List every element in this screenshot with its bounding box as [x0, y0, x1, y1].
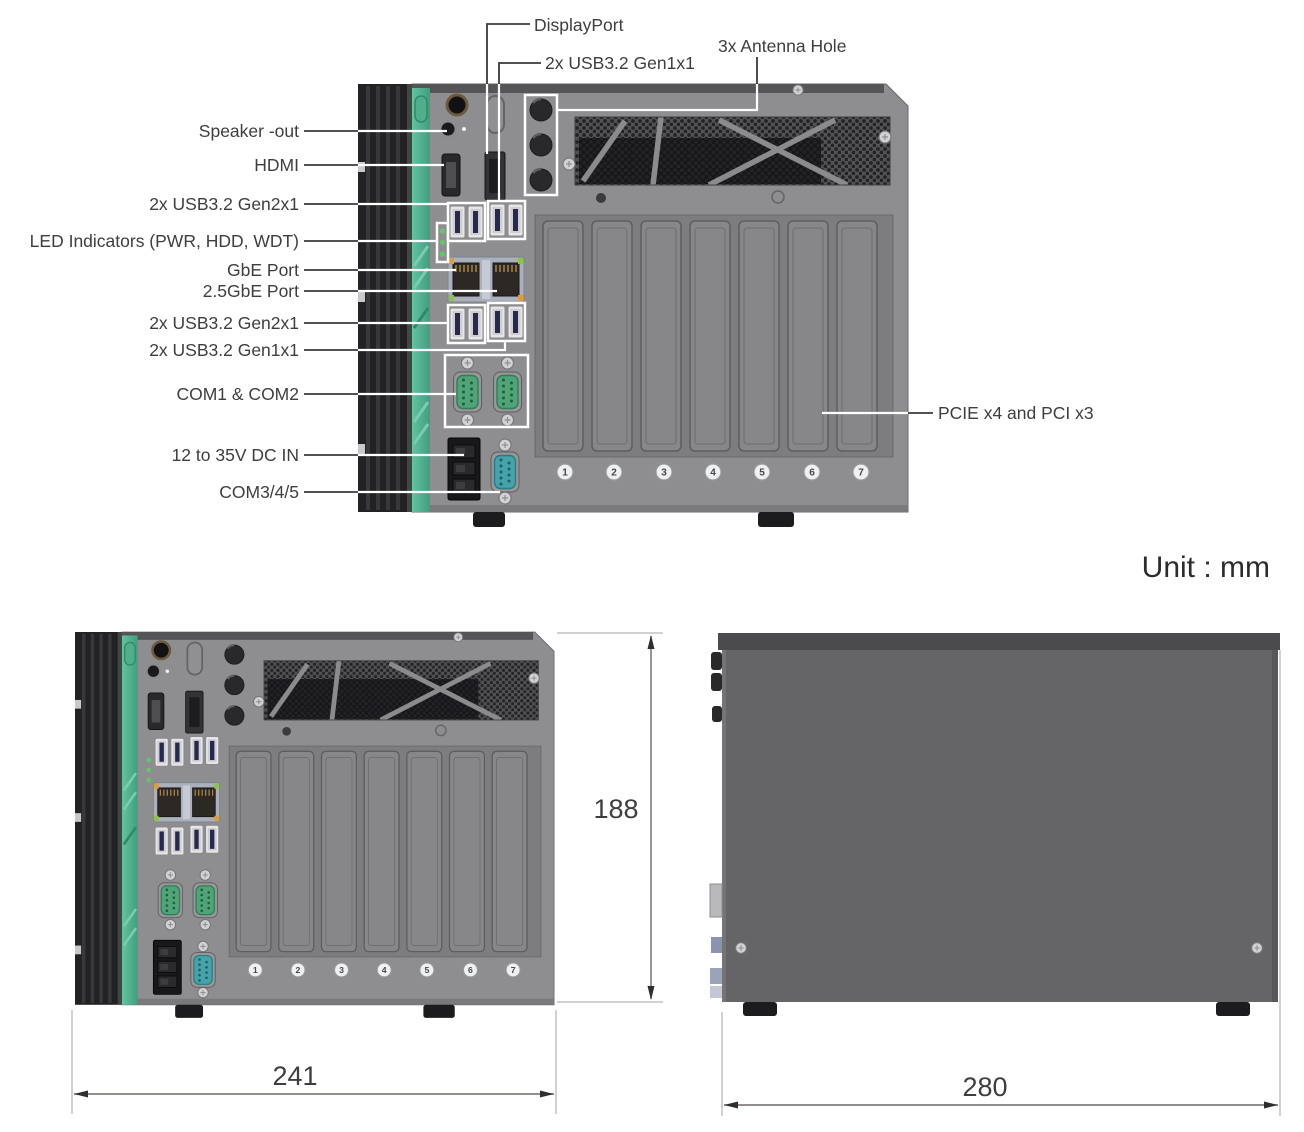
- side-view: [710, 633, 1280, 1016]
- chassis-foot: [743, 1002, 777, 1016]
- callout-com12-label: COM1 & COM2: [176, 384, 299, 404]
- callout-speaker-label: Speaker -out: [199, 121, 299, 141]
- callout-displayport-line: [487, 24, 530, 84]
- dimension-height-value: 188: [593, 794, 638, 824]
- callout-displayport-label: DisplayPort: [534, 15, 624, 35]
- callout-dcin-label: 12 to 35V DC IN: [172, 445, 299, 465]
- callout-usb-gen1-top-label: 2x USB3.2 Gen1x1: [545, 53, 695, 73]
- side-protrusions: [710, 652, 722, 998]
- callout-usb-gen2-upper-label: 2x USB3.2 Gen2x1: [149, 194, 299, 214]
- unit-label: Unit : mm: [1142, 551, 1270, 584]
- callout-gbe-label: GbE Port: [227, 260, 299, 280]
- callout-gbe25-label: 2.5GbE Port: [203, 281, 299, 301]
- callout-usb-gen2-lower-label: 2x USB3.2 Gen2x1: [149, 313, 299, 333]
- dimension-241: 241: [72, 1010, 556, 1114]
- callout-usb-gen1-top-line: [499, 63, 541, 84]
- side-panel: [722, 650, 1278, 1002]
- callout-pcie-label: PCIE x4 and PCI x3: [938, 403, 1094, 423]
- callout-led-label: LED Indicators (PWR, HDD, WDT): [30, 231, 299, 251]
- dimension-188: 188: [557, 633, 663, 1002]
- device-dimension-diagram: 1 2 3 4 5 6 7: [0, 0, 1304, 1132]
- dimension-depth-value: 280: [962, 1072, 1007, 1102]
- dimension-width-value: 241: [272, 1061, 317, 1091]
- screw: [736, 943, 747, 954]
- chassis-foot: [1216, 1002, 1250, 1016]
- callout-antenna-label: 3x Antenna Hole: [718, 36, 846, 56]
- callout-hdmi-label: HDMI: [254, 155, 299, 175]
- screw: [1252, 943, 1263, 954]
- callout-usb-gen1-lower-label: 2x USB3.2 Gen1x1: [149, 340, 299, 360]
- front-panel-view: [358, 84, 908, 527]
- front-view-scaled: [75, 632, 554, 1018]
- callout-com345-label: COM3/4/5: [219, 482, 299, 502]
